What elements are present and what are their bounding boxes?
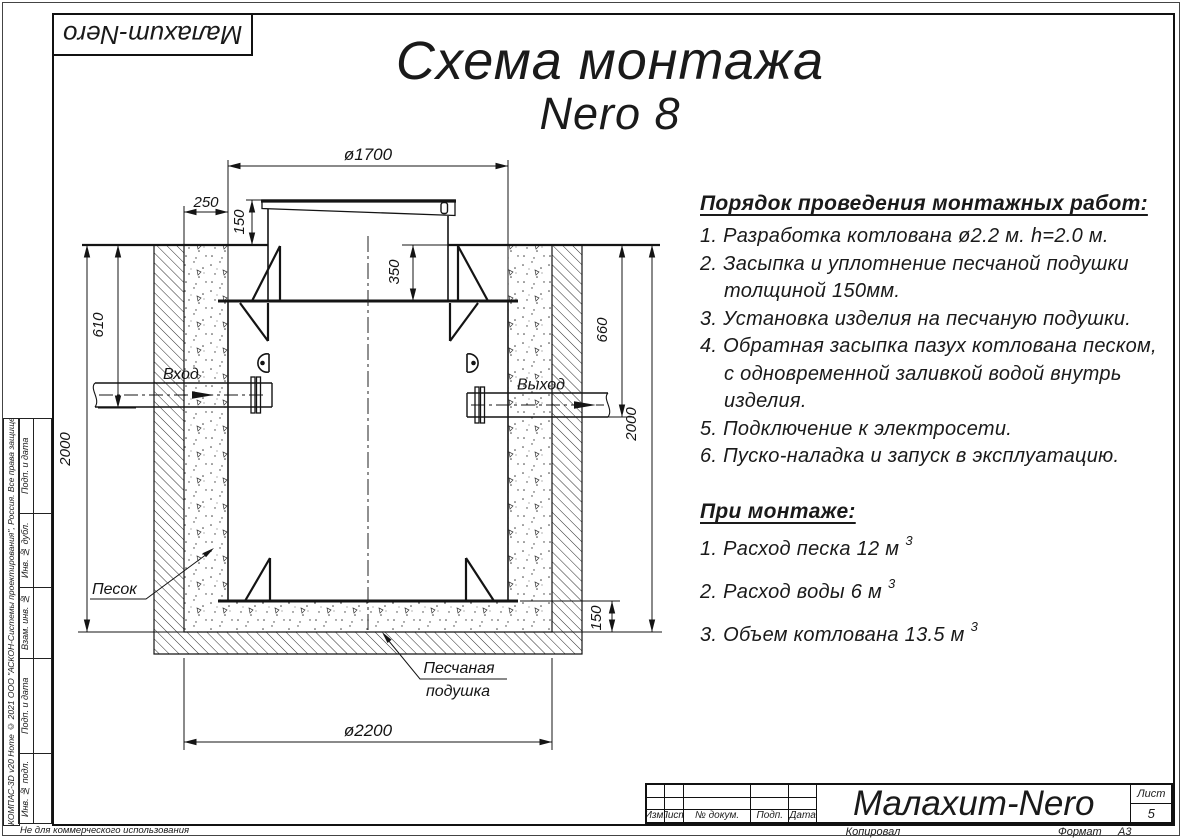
- instruction-line-2b: толщиной 150мм.: [700, 278, 1178, 306]
- sheet-number: 5: [1131, 804, 1171, 822]
- tank-neck: [268, 209, 448, 301]
- instruction-line-5: 5. Подключение к электросети.: [700, 416, 1178, 444]
- sheet-label: Лист: [1131, 785, 1171, 804]
- col-list: Лист: [665, 810, 684, 822]
- instructions-heading: Порядок проведения монтажных работ:: [700, 192, 1178, 216]
- dim-pit-depth-left: 2000: [57, 432, 74, 467]
- title-block-doc-title: Малахит-Nero: [817, 785, 1131, 822]
- drawing-subtitle: Nero 8: [250, 88, 970, 140]
- dim-top-diameter: ø1700: [344, 145, 393, 164]
- dim-pit-depth-right: 2000: [623, 407, 640, 442]
- top-left-rotated-stamp: Малахит-Nero: [52, 13, 253, 56]
- frame-side-divider: [33, 418, 34, 824]
- title-block: Изм. Лист № докум. Подп. Дата Малахит-Ne…: [645, 783, 1173, 824]
- cubic-sup: 3: [971, 619, 979, 634]
- format-value: А3: [1118, 826, 1131, 838]
- montage-item-3: 3. Объем котлована 13.5 м3: [700, 624, 1120, 667]
- lid-handle: [441, 203, 448, 214]
- installation-instructions: Порядок проведения монтажных работ: 1. Р…: [700, 192, 1178, 471]
- cushion-label-line2: подушка: [426, 683, 490, 700]
- kompas-copyright-text: КОМПАС-3D v20 Home © 2021 ООО "АСКОН-Сис…: [4, 419, 19, 825]
- side-cell-inv-podl: Инв. № подл.: [18, 753, 33, 824]
- montage-item-1: 1. Расход песка 12 м3: [700, 538, 1120, 581]
- side-cell-podp-data-2: Подп. и дата: [18, 658, 33, 753]
- col-data: Дата: [789, 810, 816, 822]
- montage-heading: При монтаже:: [700, 500, 1120, 524]
- instruction-line-1: 1. Разработка котлована ø2.2 м. h=2.0 м.: [700, 223, 1178, 251]
- tank-lid: [261, 200, 456, 216]
- title-block-sheet-cell: Лист 5: [1131, 785, 1171, 822]
- col-izm: Изм.: [647, 810, 665, 822]
- instruction-line-4b: с одновременной заливкой водой внутрь: [700, 361, 1178, 389]
- inlet-label: Вход: [163, 366, 199, 383]
- sand-label: Песок: [92, 581, 138, 598]
- title-block-header-row: Изм. Лист № докум. Подп. Дата: [647, 810, 816, 822]
- dim-neck-depth: 350: [386, 259, 403, 285]
- outlet-label: Выход: [517, 377, 565, 394]
- cubic-sup: 3: [905, 533, 913, 548]
- title-block-empty-row: [647, 785, 816, 798]
- side-cell-inv-dubl: Инв. № дубл.: [18, 513, 33, 587]
- col-podp: Подп.: [751, 810, 789, 822]
- non-commercial-watermark: Не для коммерческого использования: [20, 825, 189, 836]
- instruction-line-3: 3. Установка изделия на песчаную подушки…: [700, 306, 1178, 334]
- tank-gussets: [240, 246, 494, 601]
- dim-cushion-height: 150: [588, 605, 605, 631]
- title-block-grid: Изм. Лист № докум. Подп. Дата: [647, 785, 817, 822]
- montage-requirements: При монтаже: 1. Расход песка 12 м3 2. Ра…: [700, 500, 1120, 667]
- cubic-sup: 3: [888, 576, 896, 591]
- format-label: Формат: [1058, 826, 1102, 838]
- dim-pit-diameter: ø2200: [344, 721, 393, 740]
- drawing-sheet: Малахит-Nero Схема монтажа Nero 8 КОМПАС…: [0, 0, 1182, 838]
- title-block-empty-row: [647, 798, 816, 811]
- dim-inlet-depth: 610: [90, 312, 107, 338]
- instruction-line-6: 6. Пуско-наладка и запуск в эксплуатацию…: [700, 443, 1178, 471]
- montage-item-2: 2. Расход воды 6 м3: [700, 581, 1120, 624]
- instruction-line-2: 2. Засыпка и уплотнение песчаной подушки: [700, 251, 1178, 279]
- outlet-flow-arrow: [574, 401, 596, 409]
- cushion-label-line1: Песчаная: [423, 660, 495, 677]
- side-cell-podp-data-1: Подп. и дата: [18, 418, 33, 513]
- instruction-line-4: 4. Обратная засыпка пазух котлована песк…: [700, 333, 1178, 361]
- dim-sand-gap: 250: [192, 194, 219, 211]
- installation-scheme-drawing: ø1700 250 150 350 610 2000 660 2000 150 …: [52, 140, 677, 765]
- dim-lid-height: 150: [231, 209, 248, 235]
- copied-by-label: Копировал: [833, 826, 913, 838]
- drawing-title: Схема монтажа: [250, 30, 970, 92]
- stamp-text: Малахит-Nero: [63, 19, 242, 50]
- instruction-line-4c: изделия.: [700, 388, 1178, 416]
- side-cell-vzam-inv: Взам. инв. №: [18, 587, 33, 658]
- col-docnum: № докум.: [684, 810, 752, 822]
- dim-outlet-depth: 660: [594, 317, 611, 343]
